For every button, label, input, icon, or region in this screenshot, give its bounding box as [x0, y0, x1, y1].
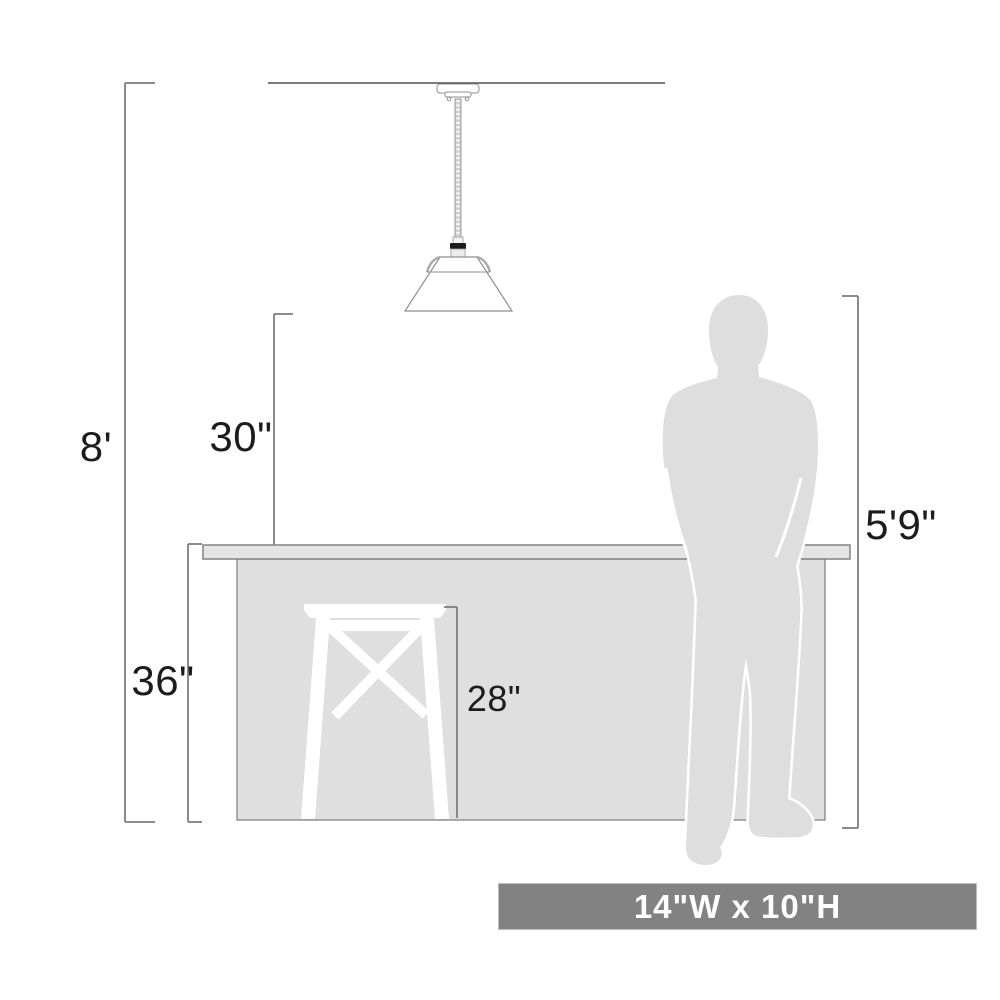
stool-seat — [304, 604, 446, 618]
counter-height-label: 36" — [131, 660, 194, 702]
pendant-canopy-collar — [445, 92, 471, 97]
dim-line-8ft — [125, 83, 155, 822]
shade-to-counter-label: 30" — [209, 416, 272, 458]
stool-height-label: 28" — [467, 681, 521, 717]
dim-line-5ft9in — [842, 296, 858, 828]
fixture-size-badge: 14"W x 10"H — [498, 883, 977, 930]
ceiling-height-label: 8' — [80, 426, 112, 468]
person-height-label: 5'9" — [865, 504, 937, 546]
canopy-screw-left — [447, 97, 451, 101]
fixture-size-text: 14"W x 10"H — [634, 888, 841, 926]
pendant-cone-shade — [405, 257, 512, 311]
socket-band-top — [450, 243, 466, 249]
canopy-screw-right — [465, 97, 469, 101]
diagram-artwork — [0, 0, 1000, 1000]
pendant-size-diagram: 8' 30" 36" 28" 5'9" 14"W x 10"H — [0, 0, 1000, 1000]
socket-neck — [453, 237, 463, 244]
pendant-light-icon — [405, 84, 512, 311]
dim-line-30in — [274, 314, 293, 545]
